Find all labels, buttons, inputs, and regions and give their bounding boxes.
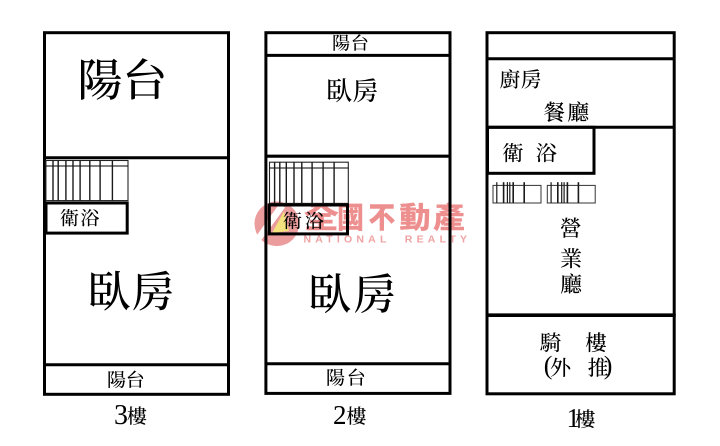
svg-text:(: ( <box>544 351 553 380</box>
svg-text:): ) <box>604 351 613 380</box>
svg-text:2: 2 <box>333 400 347 430</box>
svg-text:3: 3 <box>114 400 128 431</box>
